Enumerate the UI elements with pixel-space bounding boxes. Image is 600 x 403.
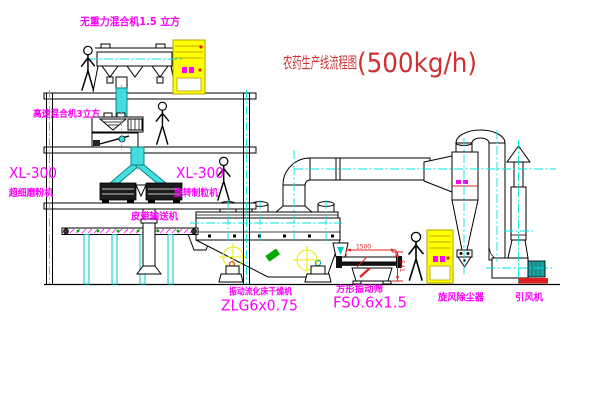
belt-conveyor [62, 228, 198, 284]
dim-sieve-height: 541 [398, 260, 406, 272]
gravity-free-mixer [93, 44, 176, 92]
process-flow-drawing: 农药生产线流程图 (500kg/h) 无重力混合机1.5 立方 高速混合机3立方… [0, 0, 600, 403]
label-fan: 引风机 [515, 292, 543, 304]
exhaust-duct-system [275, 156, 452, 213]
drawing-title: 农药生产线流程图 [283, 54, 357, 72]
label-sieve-model: FS0.6x1.5 [333, 294, 407, 312]
label-mill-model: XL-300 [9, 164, 57, 182]
rotary-granulators [100, 183, 182, 203]
label-cyclone: 旋风除尘器 [437, 292, 484, 304]
person-figure [156, 102, 168, 144]
cyclone-tag-mark [456, 180, 461, 184]
floor2-slab [44, 147, 256, 153]
label-belt-conveyor: 皮带输送机 [130, 211, 178, 223]
label-high-speed-mixer: 高速混合机3立方 [33, 108, 100, 120]
label-dryer-model: ZLG6x0.75 [221, 297, 298, 315]
floor3-slab [44, 203, 256, 209]
label-granulator-name: 旋转制粒机 [173, 187, 218, 199]
label-mill-name: 超细磨粉机 [8, 187, 53, 199]
dim-sieve-length: 1500 [356, 243, 371, 251]
person-figure [82, 46, 95, 90]
drawing-title-capacity: (500kg/h) [357, 48, 477, 79]
control-cabinet-2 [427, 230, 453, 283]
label-gravity-mixer: 无重力混合机1.5 立方 [79, 15, 180, 28]
fluid-bed-dryer [188, 202, 340, 282]
process-flow-screenshot: 农药生产线流程图 (500kg/h) 无重力混合机1.5 立方 高速混合机3立方… [0, 0, 600, 403]
roof-slab [44, 93, 256, 99]
control-cabinet-1 [173, 40, 205, 94]
fan-motor [528, 261, 545, 277]
person-figure [409, 232, 423, 280]
cyclone-separator [452, 141, 478, 268]
fan-base [518, 278, 548, 284]
label-granulator-model: XL-300 [176, 164, 224, 182]
